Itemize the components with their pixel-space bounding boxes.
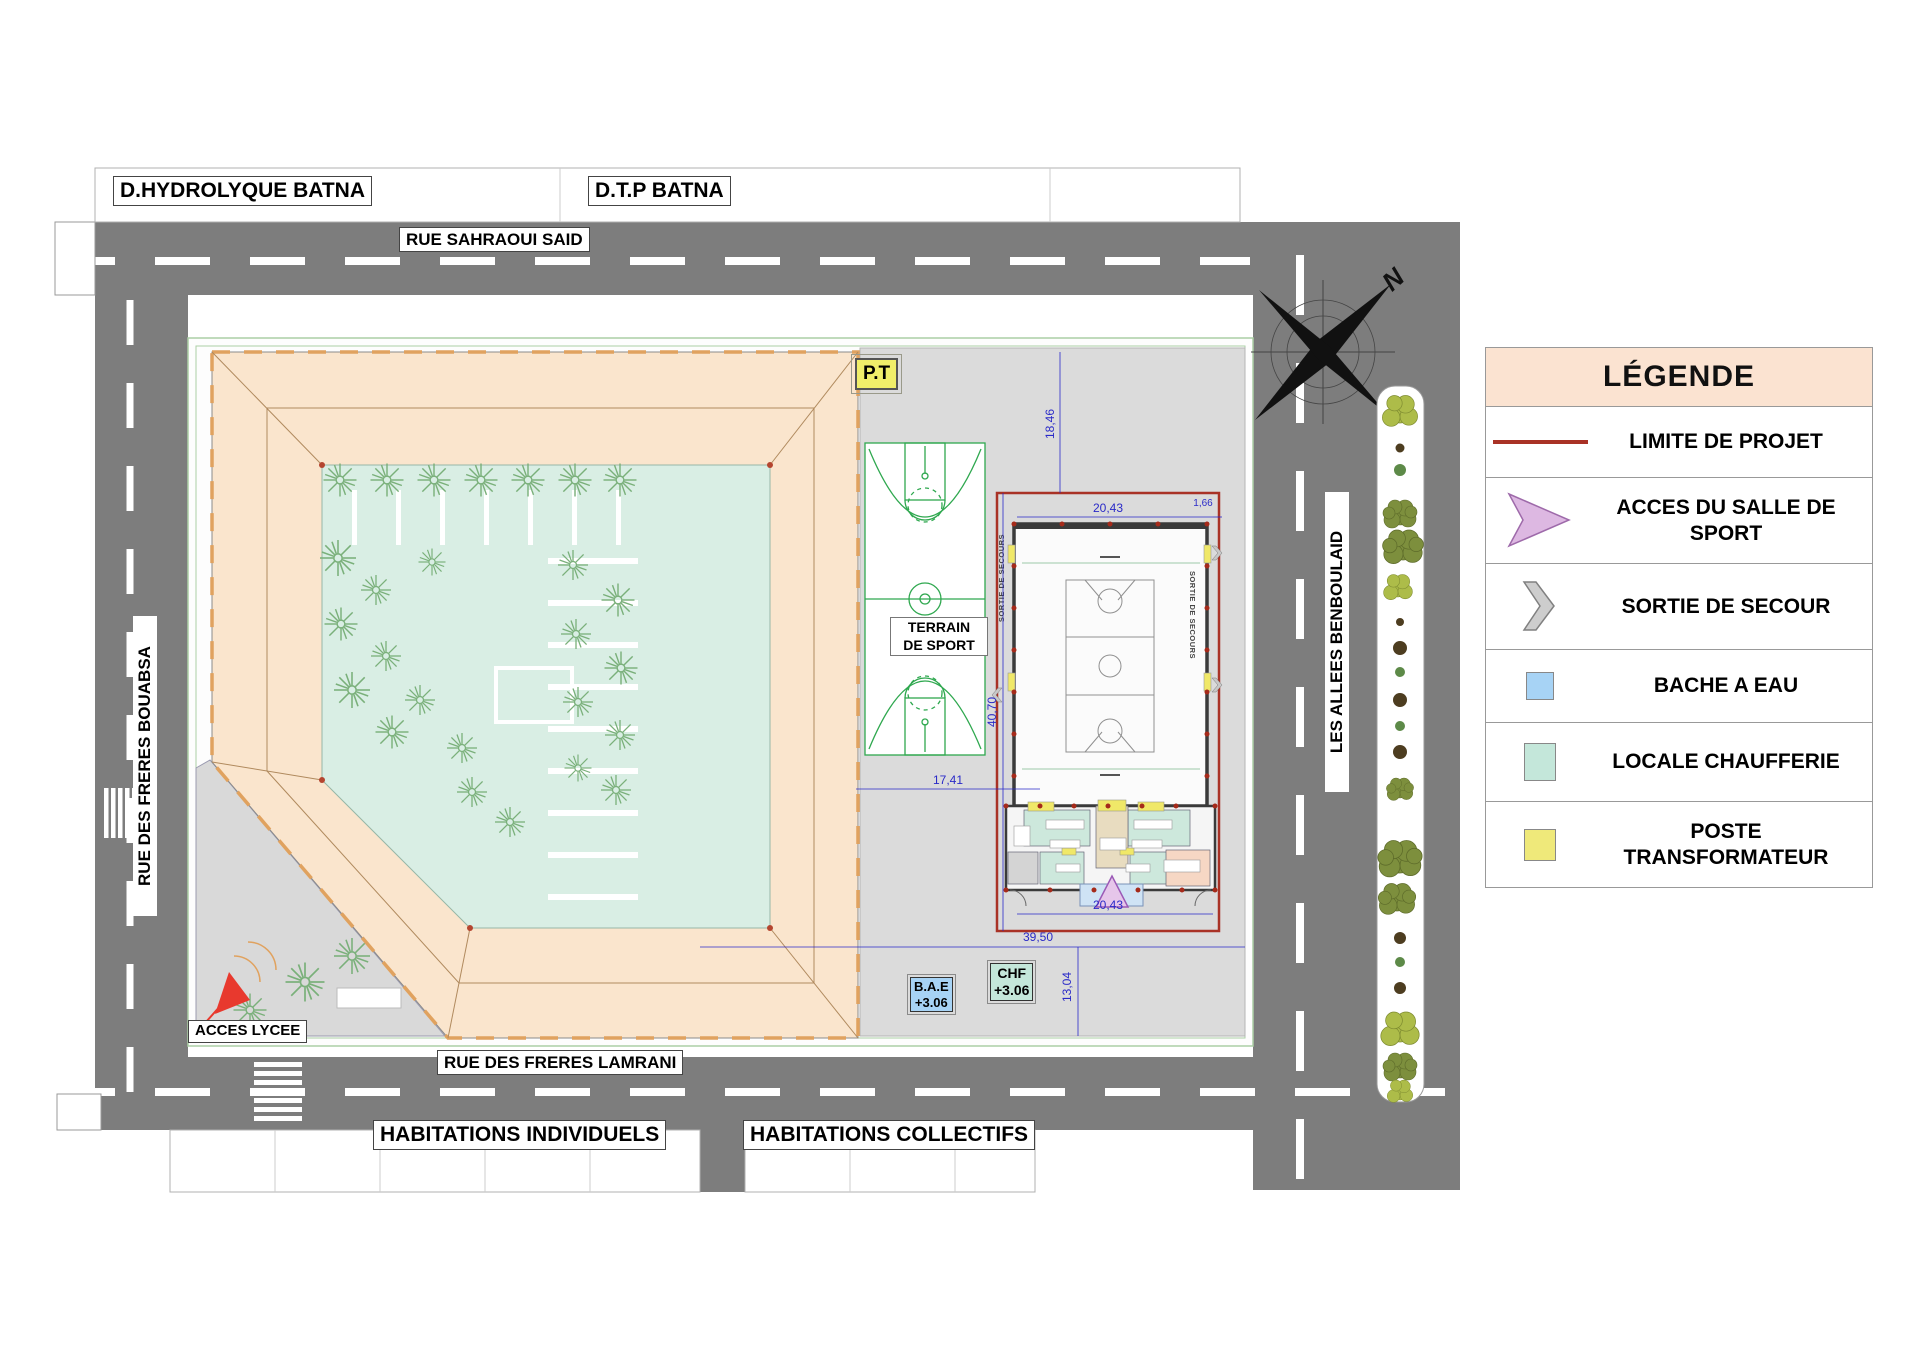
dim-20-43-top: 20,43 (1093, 501, 1123, 515)
transformer-square-icon (1524, 829, 1556, 861)
terrain-de-sport-court (865, 443, 985, 755)
chf-level: +3.06 (994, 982, 1029, 998)
dim-13-04: 13,04 (1060, 972, 1074, 1002)
legend-row-sortie: SORTIE DE SECOUR (1486, 564, 1872, 650)
dim-20-43-bottom: 20,43 (1093, 898, 1123, 912)
legend-label: LOCALE CHAUFFERIE (1594, 749, 1872, 774)
street-label-west: RUE DES FRERES BOUABSA (133, 616, 157, 916)
chf-code: CHF (997, 965, 1026, 981)
bache-a-eau-tag: B.A.E +3.06 (910, 977, 953, 1012)
chaufferie-tag: CHF +3.06 (990, 963, 1033, 1001)
legend-label: BACHE A EAU (1594, 673, 1872, 698)
bae-code: B.A.E (914, 979, 949, 994)
dim-39-50: 39,50 (1023, 930, 1053, 944)
street-label-north: RUE SAHRAOUI SAID (399, 227, 590, 252)
parcel-label-hydrolyque: D.HYDROLYQUE BATNA (113, 176, 372, 206)
acces-lycee-label: ACCES LYCEE (188, 1020, 307, 1043)
legend-panel: LÉGENDE LIMITE DE PROJET ACCES DU SALLE … (1485, 347, 1873, 888)
legend-row-bache: BACHE A EAU (1486, 650, 1872, 723)
legend-row-acces: ACCES DU SALLE DE SPORT (1486, 478, 1872, 564)
boiler-room-square-icon (1524, 743, 1556, 781)
legend-label: POSTE TRANSFORMATEUR (1594, 819, 1872, 869)
legend-row-limite: LIMITE DE PROJET (1486, 407, 1872, 478)
terrain-de-sport-label: TERRAIN DE SPORT (890, 617, 988, 656)
parcel-label-dtp: D.T.P BATNA (588, 176, 731, 206)
parcel-label-collectifs: HABITATIONS COLLECTIFS (743, 1120, 1035, 1150)
sortie-secours-label-left: SORTIE DE SECOURS (997, 534, 1006, 622)
poste-transformateur-tag: P.T (855, 358, 898, 390)
water-tank-square-icon (1526, 672, 1554, 700)
salle-de-sport: SORTIE DE SECOURS SORTIE DE SECOURS (992, 493, 1222, 931)
dim-40-70: 40,70 (985, 697, 999, 727)
bae-level: +3.06 (915, 995, 948, 1010)
legend-label: SORTIE DE SECOUR (1594, 594, 1872, 619)
tree-alley (1377, 386, 1424, 1102)
project-limit-line-icon (1493, 440, 1588, 444)
street-label-south: RUE DES FRERES LAMRANI (437, 1050, 683, 1075)
legend-row-transformateur: POSTE TRANSFORMATEUR (1486, 802, 1872, 887)
dim-17-41: 17,41 (933, 773, 963, 787)
sortie-secours-label-right: SORTIE DE SECOURS (1188, 571, 1197, 659)
dim-18-46: 18,46 (1043, 409, 1057, 439)
legend-label: LIMITE DE PROJET (1594, 429, 1872, 454)
parcel-label-individuels: HABITATIONS INDIVIDUELS (373, 1120, 666, 1150)
street-label-east: LES ALLEES BENBOULAID (1325, 492, 1349, 792)
emergency-exit-chevron-icon (1522, 580, 1558, 634)
legend-label: ACCES DU SALLE DE SPORT (1594, 495, 1872, 545)
site-plan-canvas: SORTIE DE SECOURS SORTIE DE SECOURS 18,4… (0, 0, 1920, 1358)
legend-row-chaufferie: LOCALE CHAUFFERIE (1486, 723, 1872, 802)
access-arrow-icon (1507, 492, 1573, 550)
dim-1-66: 1,66 (1193, 498, 1213, 509)
legend-title: LÉGENDE (1486, 348, 1872, 407)
